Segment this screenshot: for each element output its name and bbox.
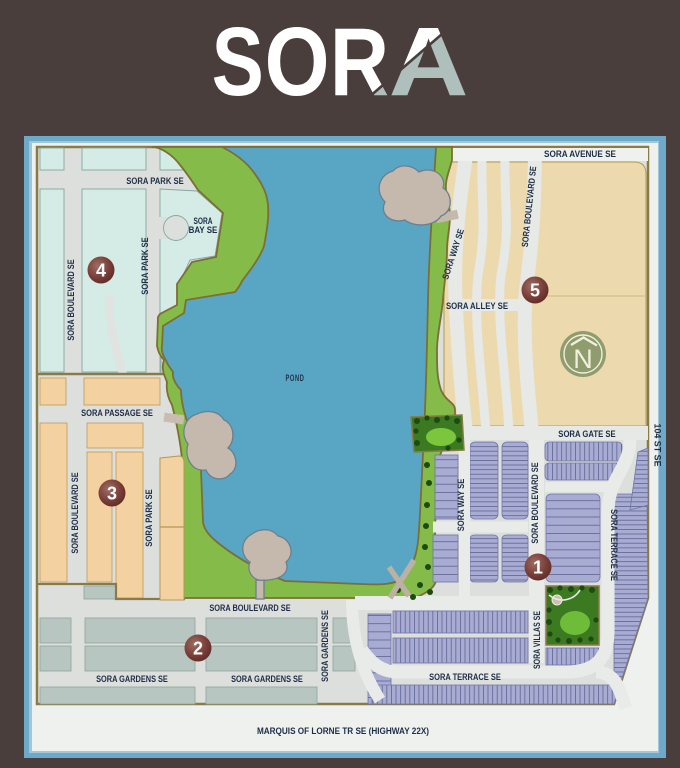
svg-text:SORA GARDENS SE: SORA GARDENS SE: [231, 674, 303, 684]
svg-text:SORA WAY SE: SORA WAY SE: [456, 479, 466, 532]
svg-text:104 ST SE: 104 ST SE: [653, 424, 663, 467]
svg-text:SORA AVENUE SE: SORA AVENUE SE: [544, 149, 616, 159]
svg-text:SORA TERRACE SE: SORA TERRACE SE: [429, 672, 501, 682]
svg-text:N: N: [573, 344, 593, 374]
svg-text:SORA GARDENS SE: SORA GARDENS SE: [96, 674, 168, 684]
svg-text:1: 1: [533, 558, 543, 578]
svg-text:3: 3: [107, 484, 117, 504]
svg-text:SORA BOULEVARD SE: SORA BOULEVARD SE: [530, 462, 540, 543]
svg-text:SORA PARK SE: SORA PARK SE: [144, 489, 154, 546]
svg-text:SORA VILLAS SE: SORA VILLAS SE: [532, 611, 542, 669]
svg-text:SORA PARK SE: SORA PARK SE: [126, 176, 183, 186]
svg-text:S: S: [212, 7, 264, 116]
svg-text:SORA BOULEVARD SE: SORA BOULEVARD SE: [66, 259, 76, 340]
svg-text:SORA PARK SE: SORA PARK SE: [140, 237, 150, 294]
svg-text:5: 5: [530, 281, 540, 301]
svg-text:SORA GARDENS SE: SORA GARDENS SE: [320, 610, 330, 682]
svg-text:MARQUIS OF LORNE TR SE (HIGHWA: MARQUIS OF LORNE TR SE (HIGHWAY 22X): [257, 726, 429, 736]
svg-text:SORA BOULEVARD SE: SORA BOULEVARD SE: [70, 472, 80, 553]
svg-text:SORA PASSAGE SE: SORA PASSAGE SE: [81, 408, 153, 418]
svg-text:SORA ALLEY SE: SORA ALLEY SE: [446, 301, 508, 311]
svg-text:2: 2: [193, 639, 203, 659]
svg-text:SORA GATE SE: SORA GATE SE: [558, 429, 615, 439]
svg-text:POND: POND: [285, 373, 304, 383]
svg-text:O: O: [265, 8, 330, 116]
svg-text:BAY SE: BAY SE: [189, 225, 218, 235]
svg-text:4: 4: [96, 261, 106, 281]
svg-text:SORA TERRACE SE: SORA TERRACE SE: [609, 509, 619, 581]
svg-text:SORA BOULEVARD SE: SORA BOULEVARD SE: [209, 603, 290, 613]
